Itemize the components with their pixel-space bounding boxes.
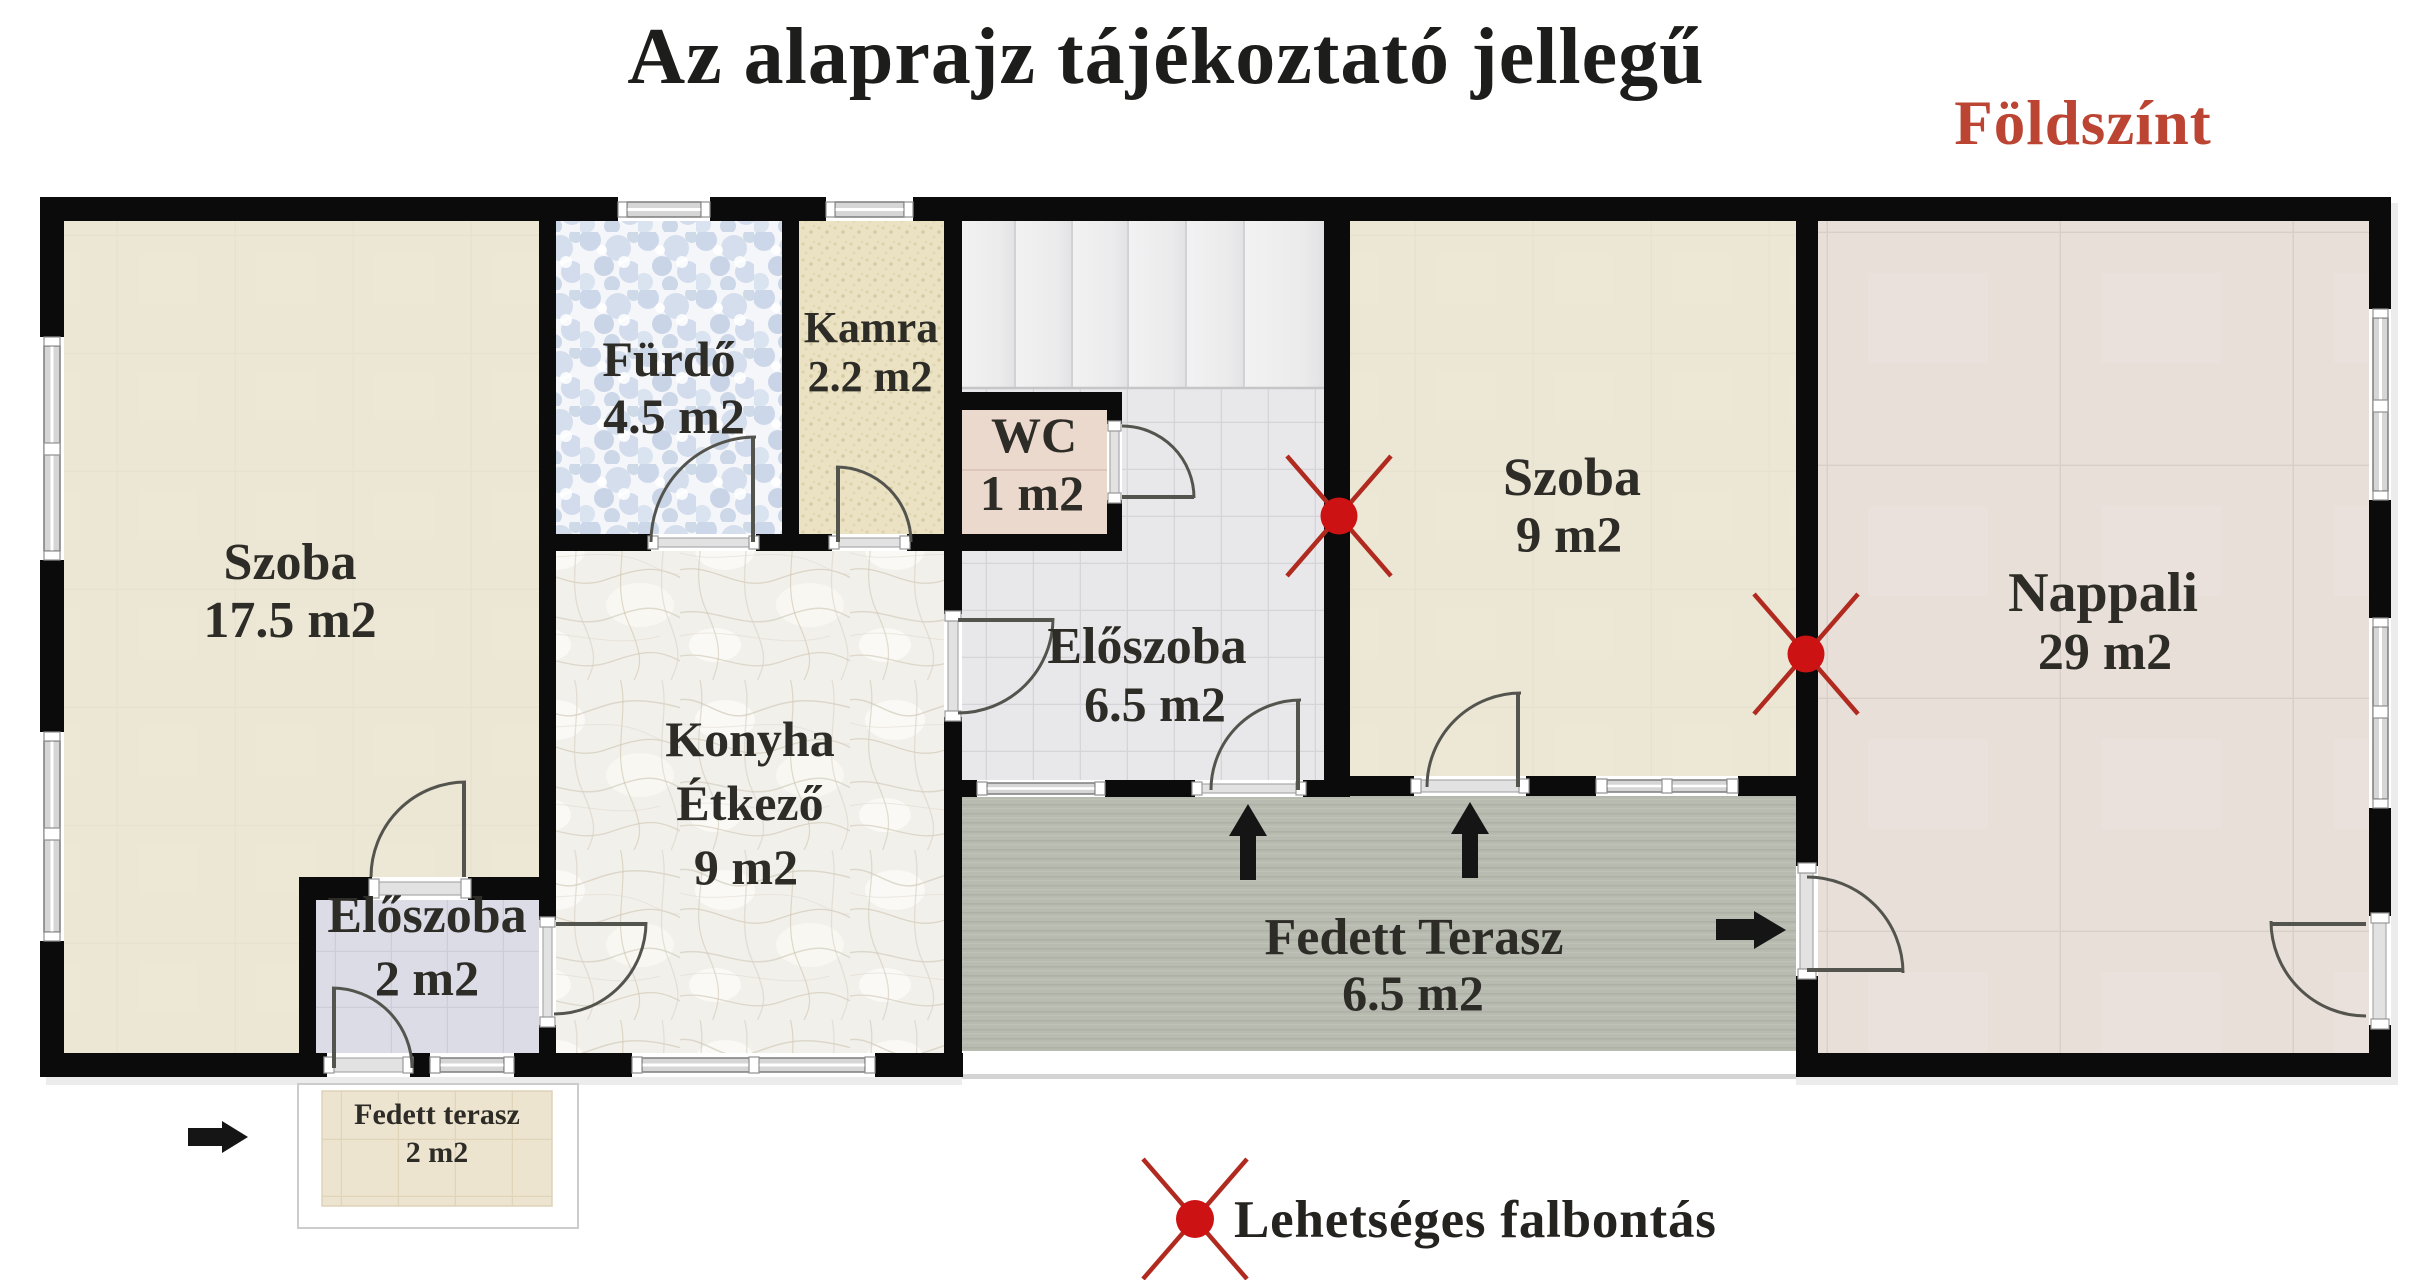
svg-text:9 m2: 9 m2 (694, 839, 798, 895)
svg-text:Előszoba: Előszoba (327, 887, 526, 944)
svg-text:17.5 m2: 17.5 m2 (203, 592, 376, 649)
svg-text:2 m2: 2 m2 (375, 950, 479, 1006)
svg-text:6.5 m2: 6.5 m2 (1084, 676, 1226, 732)
svg-text:2 m2: 2 m2 (406, 1136, 469, 1169)
svg-text:29 m2: 29 m2 (2038, 624, 2172, 681)
svg-text:2.2 m2: 2.2 m2 (808, 352, 933, 401)
svg-text:1 m2: 1 m2 (980, 465, 1084, 521)
svg-text:Kamra: Kamra (804, 303, 938, 352)
svg-text:Szoba: Szoba (224, 534, 357, 591)
svg-text:WC: WC (991, 407, 1077, 463)
svg-text:9 m2: 9 m2 (1516, 508, 1622, 564)
svg-text:Előszoba: Előszoba (1047, 618, 1246, 675)
svg-text:Lehetséges falbontás: Lehetséges falbontás (1234, 1191, 1717, 1249)
svg-text:Étkező: Étkező (676, 775, 823, 831)
svg-text:Szoba: Szoba (1503, 447, 1641, 507)
svg-text:Fürdő: Fürdő (602, 331, 735, 387)
svg-text:Nappali: Nappali (2008, 562, 2198, 624)
svg-text:4.5 m2: 4.5 m2 (603, 388, 745, 444)
svg-text:Fedett Terasz: Fedett Terasz (1265, 909, 1564, 966)
svg-text:Konyha: Konyha (665, 711, 835, 767)
svg-text:Az alaprajz tájékoztató jelleg: Az alaprajz tájékoztató jellegű (627, 13, 1704, 101)
svg-text:6.5 m2: 6.5 m2 (1342, 965, 1484, 1021)
svg-text:Fedett terasz: Fedett terasz (354, 1098, 520, 1131)
svg-text:Földszínt: Földszínt (1954, 88, 2212, 158)
